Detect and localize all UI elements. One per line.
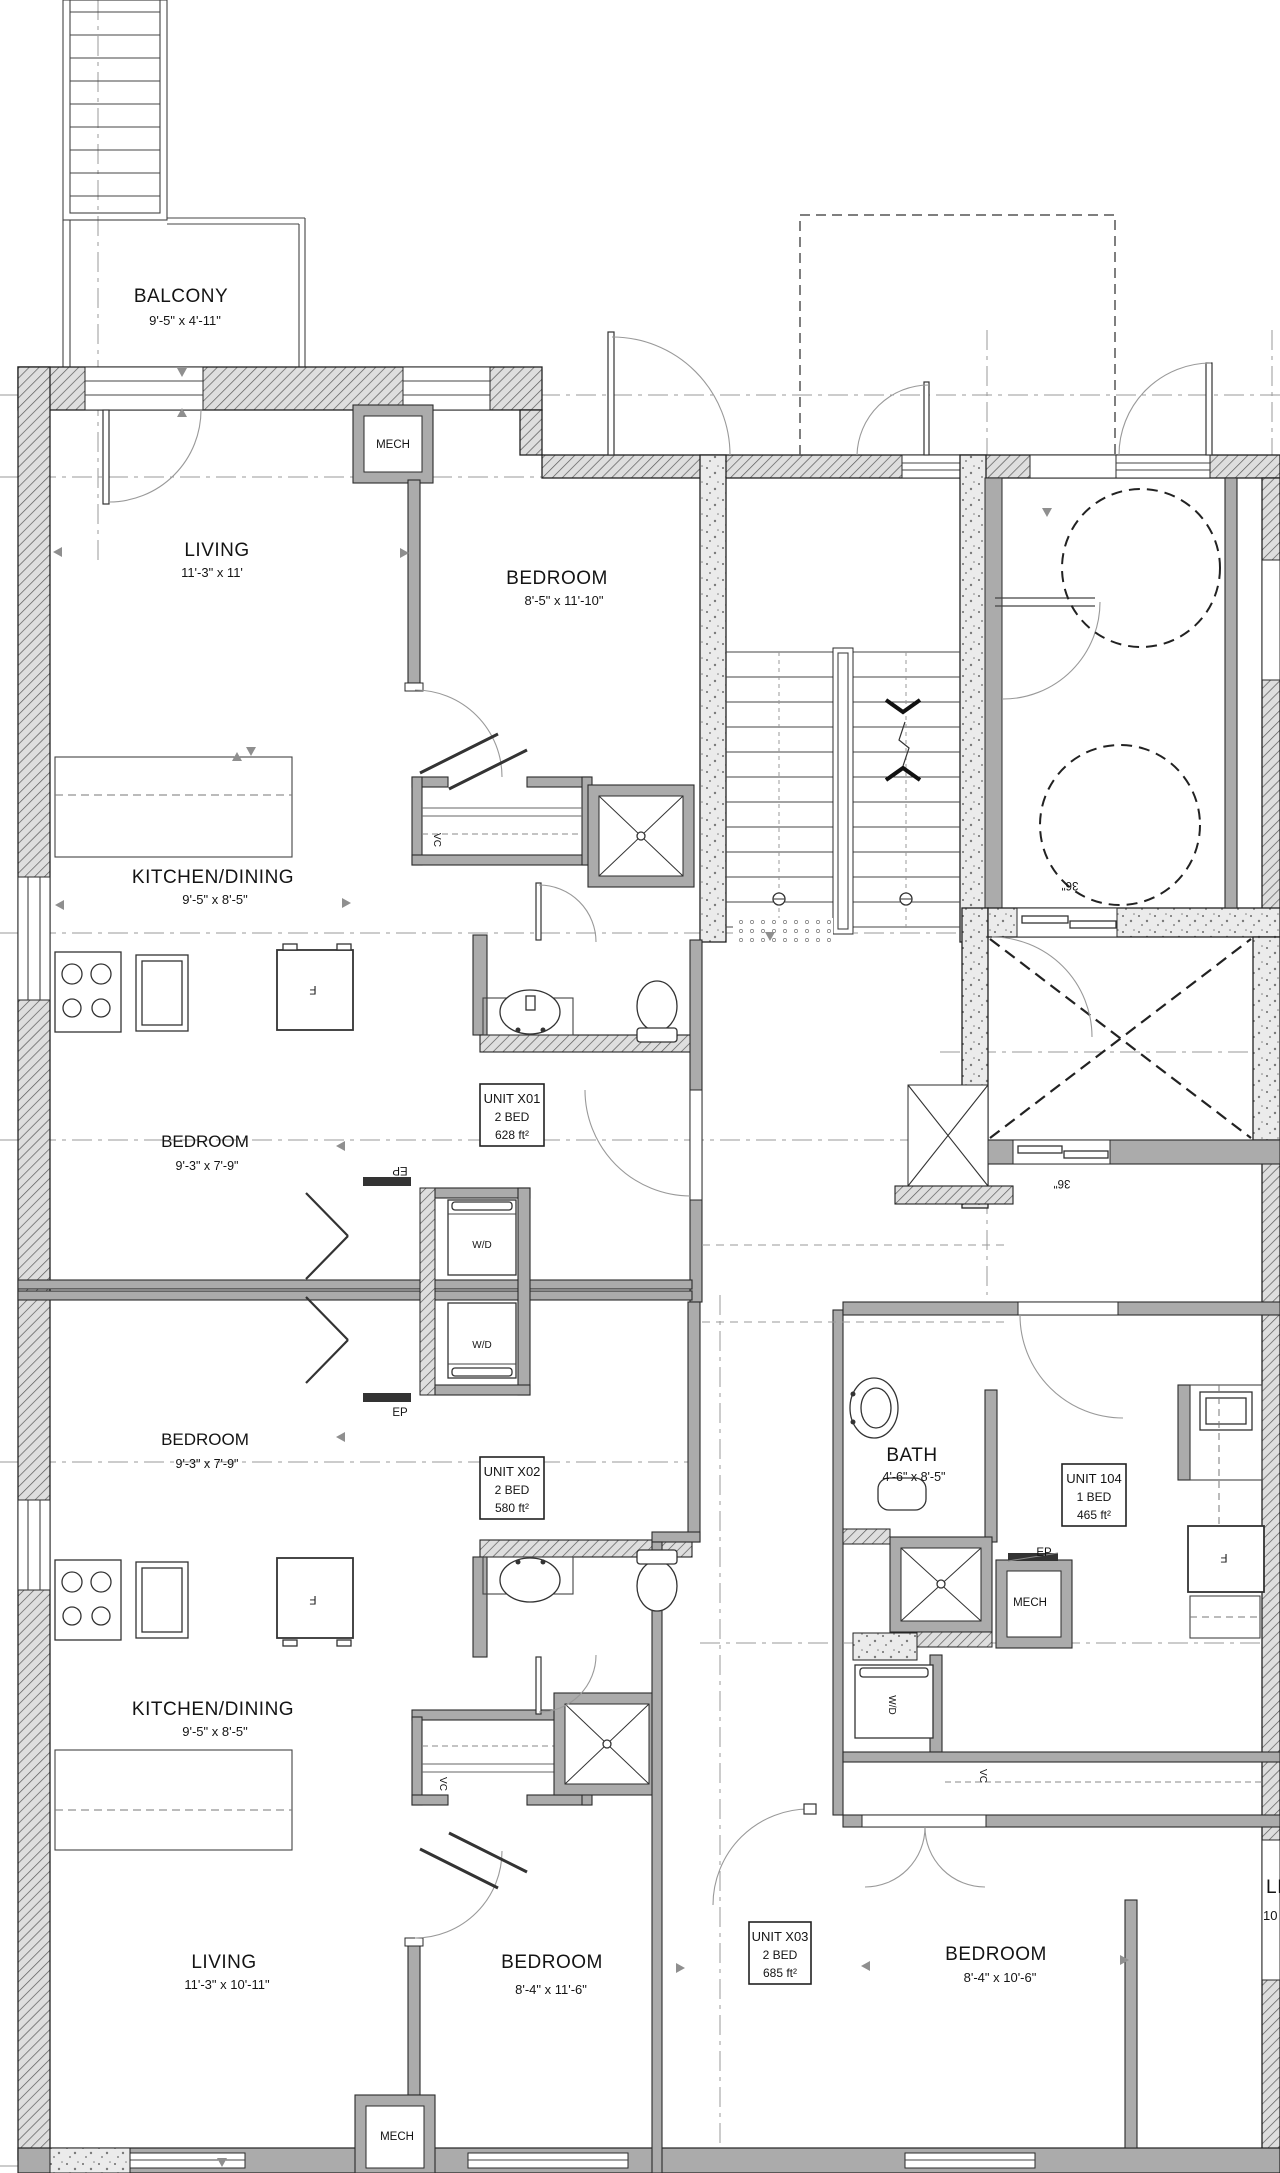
room-label-bath-104: BATH <box>886 1445 937 1466</box>
bath-x02-fixtures <box>483 1550 677 1611</box>
interior-walls <box>18 405 1280 2173</box>
room-label-bedroom-x01-main: BEDROOM <box>506 568 608 589</box>
canopy-dashed-outline <box>800 215 1115 455</box>
room-label-living-x02: LIVING <box>191 1952 256 1973</box>
unit-tag-104: UNIT 104 1 BED 465 ft² <box>1062 1464 1126 1526</box>
room-dims-bedroom-x01-main: 8'-5" x 11'-10" <box>525 593 604 608</box>
balcony-stair <box>63 0 305 367</box>
room-dims-living-x02: 11'-3" x 10'-11" <box>184 1977 270 1992</box>
room-dims-bedroom-x02-main: 8'-4" x 11'-6" <box>515 1982 587 1997</box>
room-label-bedroom-x03: BEDROOM <box>945 1944 1047 1965</box>
unit-x02-area: 580 ft² <box>495 1501 529 1515</box>
room-label-bedroom-x02-main: BEDROOM <box>501 1952 603 1973</box>
turning-circle-upper <box>1062 489 1220 647</box>
ep-label-104: EP <box>1036 1547 1052 1559</box>
washer-dryer-x01 <box>448 1200 516 1275</box>
room-dims-kitchen-x01: 9'-5" x 8'-5" <box>182 892 248 907</box>
bath-x01-fixtures <box>483 981 677 1042</box>
unit-104-id: UNIT 104 <box>1066 1471 1121 1486</box>
room-dims-kitchen-x02: 9'-5" x 8'-5" <box>182 1724 248 1739</box>
unit-x01-beds: 2 BED <box>495 1110 530 1124</box>
stair-break-line <box>899 722 909 766</box>
bath-104-fixtures <box>850 1378 926 1510</box>
unit-tag-x02: UNIT X02 2 BED 580 ft² <box>480 1457 544 1519</box>
room-label-kitchen-x02: KITCHEN/DINING <box>132 1699 294 1720</box>
mech-label-top: MECH <box>376 439 410 451</box>
floor-plan-svg: BALCONY 9'-5" x 4'-11" MECH LIVING 11'-3… <box>0 0 1280 2173</box>
electrical-panel-x01 <box>363 1177 411 1186</box>
island-x02 <box>55 1750 292 1850</box>
vc-label-x01: VC <box>431 833 442 847</box>
vc-label-104: VC <box>977 1769 988 1783</box>
unit-x01-area: 628 ft² <box>495 1128 529 1142</box>
room-label-bedroom-x01-2nd: BEDROOM <box>161 1132 249 1151</box>
wd-label-x01: W/D <box>472 1240 491 1251</box>
room-dims-bedroom-x03: 8'-4" x 10'-6" <box>964 1970 1037 1985</box>
mech-label-bottom: MECH <box>380 2131 414 2143</box>
room-label-balcony: BALCONY <box>134 286 228 307</box>
stair-up-arrow <box>886 768 920 780</box>
room-label-bedroom-x02-2nd: BEDROOM <box>161 1430 249 1449</box>
ep-label-x01: EP <box>392 1164 408 1176</box>
electrical-panel-x02 <box>363 1393 411 1402</box>
kitchen-104 <box>1188 1385 1264 1638</box>
fridge-label-x01: F <box>309 983 316 995</box>
unit-x03-id: UNIT X03 <box>752 1929 809 1944</box>
unit-x02-id: UNIT X02 <box>484 1464 541 1479</box>
island-x01 <box>55 757 292 857</box>
clearance-36-upper: 36" <box>1062 879 1079 891</box>
room-dims-bedroom-x02-2nd: 9'-3" x 7'-9" <box>176 1457 239 1471</box>
room-label-living-x01: LIVING <box>184 540 249 561</box>
kitchen-x02-appliances <box>55 1558 353 1646</box>
room-dims-living-edge: 10 <box>1263 1908 1277 1923</box>
unit-tag-x03: UNIT X03 2 BED 685 ft² <box>749 1922 811 1984</box>
unit-x02-beds: 2 BED <box>495 1483 530 1497</box>
unit-104-beds: 1 BED <box>1077 1490 1112 1504</box>
kitchen-x01-appliances <box>55 944 353 1032</box>
floor-plan-page: BALCONY 9'-5" x 4'-11" MECH LIVING 11'-3… <box>0 0 1280 2173</box>
fridge-label-x02: F <box>309 1593 316 1605</box>
stair-elevator-core <box>700 455 1280 1208</box>
ep-label-x02: EP <box>392 1407 408 1419</box>
room-dims-balcony: 9'-5" x 4'-11" <box>149 313 221 328</box>
unit-x01-id: UNIT X01 <box>484 1091 541 1106</box>
room-dims-living-x01: 11'-3" x 11' <box>181 565 243 580</box>
turning-circles <box>1040 489 1220 905</box>
unit-x03-area: 685 ft² <box>763 1966 797 1980</box>
tactile-strip <box>733 918 833 946</box>
elevator-shaft-x <box>990 939 1251 1138</box>
mech-label-104: MECH <box>1013 1597 1047 1609</box>
clearance-36-lower: 36" <box>1054 1177 1071 1189</box>
stair-treads <box>726 648 960 946</box>
room-dims-bedroom-x01-2nd: 9'-3" x 7'-9" <box>176 1159 239 1173</box>
unit-x03-beds: 2 BED <box>763 1948 798 1962</box>
unit-tag-x01: UNIT X01 2 BED 628 ft² <box>480 1084 544 1146</box>
unit-104-area: 465 ft² <box>1077 1508 1111 1522</box>
wd-label-x02: W/D <box>472 1340 491 1351</box>
wd-label-104: W/D <box>886 1695 897 1714</box>
room-label-living-edge: LI <box>1266 1877 1280 1898</box>
room-dims-bath-104: 4'-6" x 8'-5" <box>883 1470 946 1484</box>
vc-label-x02: VC <box>437 1777 448 1791</box>
exterior-walls <box>18 215 1280 2173</box>
room-label-kitchen-x01: KITCHEN/DINING <box>132 867 294 888</box>
fridge-label-104: F <box>1220 1551 1227 1563</box>
